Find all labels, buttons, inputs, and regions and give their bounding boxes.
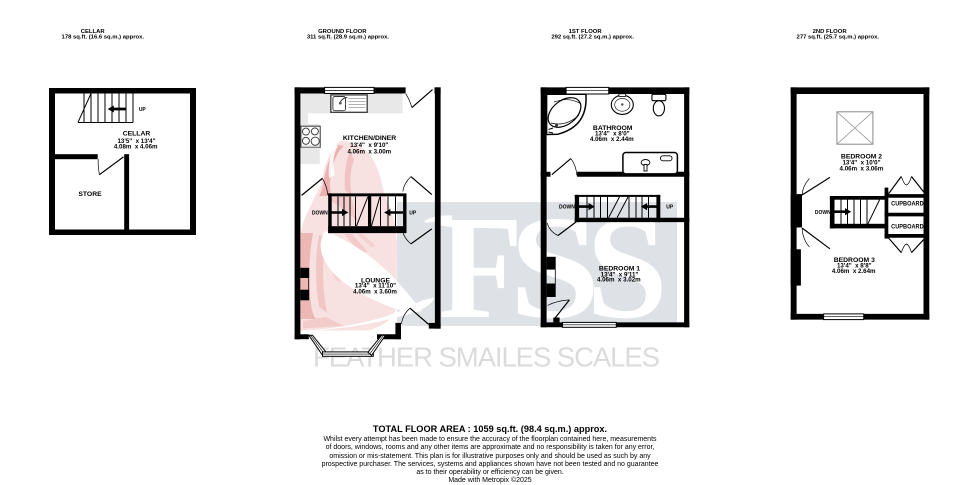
svg-text:4.06m x 2.44m: 4.06m x 2.44m [590, 136, 634, 143]
svg-text:CUPBOARD: CUPBOARD [891, 223, 924, 230]
svg-text:277 sq.ft. (25.7 sq.m.) approx: 277 sq.ft. (25.7 sq.m.) approx. [797, 34, 880, 40]
svg-text:4.06m x 3.00m: 4.06m x 3.00m [347, 148, 391, 155]
svg-text:CELLAR: CELLAR [123, 130, 151, 137]
svg-text:4.06m x 3.02m: 4.06m x 3.02m [597, 276, 641, 283]
svg-text:DOWN: DOWN [815, 210, 831, 216]
svg-text:UP: UP [666, 204, 674, 210]
svg-text:178 sq.ft. (16.6 sq.m.) approx: 178 sq.ft. (16.6 sq.m.) approx. [62, 34, 145, 40]
svg-text:FEATHER SMAILES SCALES: FEATHER SMAILES SCALES [313, 342, 660, 373]
svg-text:4.06m x 2.64m: 4.06m x 2.64m [832, 268, 876, 275]
svg-text:4.08m x 4.06m: 4.08m x 4.06m [114, 144, 158, 151]
svg-text:DOWN: DOWN [559, 204, 575, 210]
svg-text:4.06m x 3.06m: 4.06m x 3.06m [840, 165, 884, 172]
svg-text:DOWN: DOWN [312, 211, 328, 217]
svg-text:4.06m x 3.60m: 4.06m x 3.60m [353, 289, 397, 296]
svg-text:292 sq.ft. (27.2 sq.m.) approx: 292 sq.ft. (27.2 sq.m.) approx. [551, 34, 634, 40]
svg-text:311 sq.ft. (28.9 sq.m.) approx: 311 sq.ft. (28.9 sq.m.) approx. [307, 34, 390, 40]
svg-text:STORE: STORE [78, 191, 102, 198]
svg-text:UP: UP [409, 211, 417, 217]
svg-text:UP: UP [139, 107, 147, 113]
svg-text:CUPBOARD: CUPBOARD [891, 200, 924, 207]
